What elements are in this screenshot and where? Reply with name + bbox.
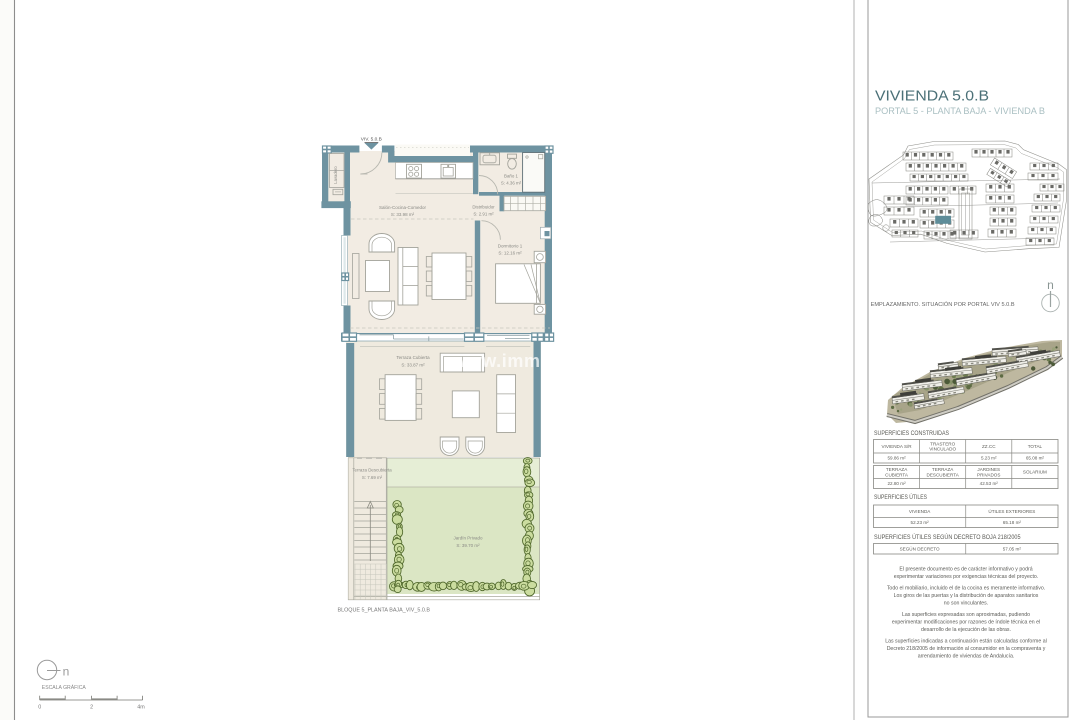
svg-text:El presente documento es de ca: El presente documento es de carácter inf… xyxy=(899,567,1032,573)
svg-text:n: n xyxy=(1047,278,1054,292)
svg-text:Terraza Cubierta: Terraza Cubierta xyxy=(396,355,430,360)
svg-text:SEGÚN DECRETO: SEGÚN DECRETO xyxy=(900,545,940,551)
svg-text:0: 0 xyxy=(38,705,41,711)
svg-text:VINCULADO: VINCULADO xyxy=(929,447,956,452)
svg-text:Las superficies indicadas a co: Las superficies indicadas a continuación… xyxy=(885,639,1046,645)
svg-text:Lavadero: Lavadero xyxy=(333,166,338,184)
svg-text:PORTAL 5 - PLANTA BAJA - VIVIE: PORTAL 5 - PLANTA BAJA - VIVIENDA B xyxy=(875,106,1045,116)
svg-text:S: 12.16 m²: S: 12.16 m² xyxy=(498,251,522,256)
svg-text:ÚTILES EXTERIORES: ÚTILES EXTERIORES xyxy=(988,508,1035,514)
svg-text:5.23 m²: 5.23 m² xyxy=(981,456,997,461)
svg-text:Terraza Descubierta: Terraza Descubierta xyxy=(352,468,392,473)
svg-text:CUBIERTA: CUBIERTA xyxy=(885,472,909,477)
svg-text:Dormitorio 1: Dormitorio 1 xyxy=(498,244,523,249)
svg-text:experimentar variaciones por e: experimentar variaciones por exigencias … xyxy=(894,574,1038,580)
svg-text:Baño 1: Baño 1 xyxy=(504,174,518,179)
svg-text:Todo el mobiliario, incluido e: Todo el mobiliario, incluido el de la co… xyxy=(887,586,1045,592)
svg-text:desarrollo de la ejecución de: desarrollo de la ejecución de las obras. xyxy=(921,627,1011,633)
svg-text:experimentar modificaciones po: experimentar modificaciones por razones … xyxy=(892,619,1040,625)
svg-text:BLOQUE 5_PLANTA BAJA_VIV_5.0.B: BLOQUE 5_PLANTA BAJA_VIV_5.0.B xyxy=(338,608,431,614)
svg-text:Jardín Privado: Jardín Privado xyxy=(453,536,483,541)
svg-text:SUPERFICIES ÚTILES SEGÚN DECRE: SUPERFICIES ÚTILES SEGÚN DECRETO BOJA 21… xyxy=(874,534,1021,541)
svg-text:S: 39.70 m²: S: 39.70 m² xyxy=(456,543,480,548)
svg-text:VIVIENDA: VIVIENDA xyxy=(909,509,931,514)
svg-text:59.86 m²: 59.86 m² xyxy=(887,456,906,461)
svg-text:4m: 4m xyxy=(137,705,145,711)
svg-text:42.53 m²: 42.53 m² xyxy=(980,481,999,486)
svg-text:EMPLAZAMIENTO. SITUACIÓN POR P: EMPLAZAMIENTO. SITUACIÓN POR PORTAL VIV … xyxy=(871,301,1015,308)
svg-text:SUPERFICIES ÚTILES: SUPERFICIES ÚTILES xyxy=(874,494,927,501)
svg-text:Los giros de las puertas y la: Los giros de las puertas y la distribuci… xyxy=(894,593,1039,599)
svg-text:TOTAL: TOTAL xyxy=(1028,444,1043,449)
svg-text:DESCUBIERTA: DESCUBIERTA xyxy=(927,472,960,477)
svg-text:Distribuidor: Distribuidor xyxy=(472,205,495,210)
svg-text:ZZ.CC: ZZ.CC xyxy=(982,444,996,449)
svg-text:arrendamiento de viviendas de: arrendamiento de viviendas de Andalucía. xyxy=(918,653,1015,659)
svg-text:S: 2.91 m²: S: 2.91 m² xyxy=(473,212,494,217)
svg-text:22.80 m²: 22.80 m² xyxy=(887,481,906,486)
svg-text:VIV. 5.0.B: VIV. 5.0.B xyxy=(361,137,382,143)
svg-text:ESCALA GRÁFICA: ESCALA GRÁFICA xyxy=(42,684,87,691)
svg-text:Las superficies expresadas son: Las superficies expresadas son aproximad… xyxy=(902,612,1030,618)
svg-text:Salón-Cocina-Comedor: Salón-Cocina-Comedor xyxy=(379,205,427,210)
svg-text:52.23 m²: 52.23 m² xyxy=(911,520,930,525)
svg-text:VIVIENDA S/R: VIVIENDA S/R xyxy=(881,444,912,449)
svg-text:65.08 m²: 65.08 m² xyxy=(1026,456,1045,461)
svg-text:S: 4.36 m²: S: 4.36 m² xyxy=(501,181,522,186)
svg-text:VIVIENDA 5.0.B: VIVIENDA 5.0.B xyxy=(875,88,989,105)
svg-text:Decreto 218/2005 de informació: Decreto 218/2005 de información al consu… xyxy=(887,646,1046,652)
svg-text:no son vinculantes.: no son vinculantes. xyxy=(944,600,988,606)
svg-text:65.18 m²: 65.18 m² xyxy=(1003,520,1022,525)
svg-text:n: n xyxy=(63,665,70,679)
svg-text:SOLARIUM: SOLARIUM xyxy=(1023,470,1047,475)
svg-text:S: 33.98 m²: S: 33.98 m² xyxy=(391,212,415,217)
svg-text:www.immo: www.immo xyxy=(452,351,552,371)
svg-text:S: 33.87 m²: S: 33.87 m² xyxy=(401,363,425,368)
svg-text:2: 2 xyxy=(90,705,93,711)
svg-text:PRIVADOS: PRIVADOS xyxy=(977,472,1000,477)
svg-text:S: 7.69 m²: S: 7.69 m² xyxy=(362,475,383,480)
svg-text:57.05 m²: 57.05 m² xyxy=(1003,546,1022,551)
svg-text:SUPERFICIES CONSTRUIDAS: SUPERFICIES CONSTRUIDAS xyxy=(874,431,949,437)
